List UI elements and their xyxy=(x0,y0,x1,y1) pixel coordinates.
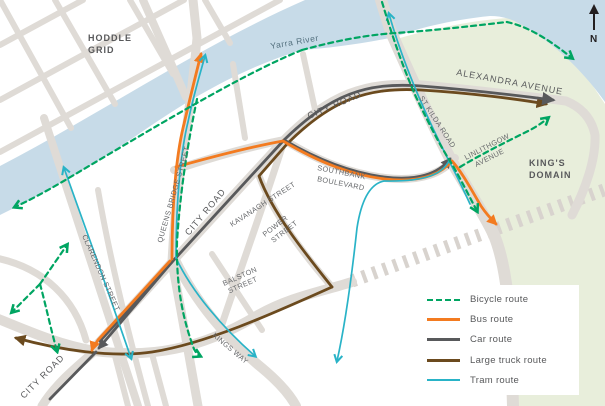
bus-route-swatch-icon xyxy=(427,318,460,321)
kings-domain-label-line1: KING'S xyxy=(529,158,566,168)
kings-domain-label-line2: DOMAIN xyxy=(529,170,572,180)
map-legend: Bicycle route Bus route Car route Large … xyxy=(413,285,579,395)
legend-item-bus: Bus route xyxy=(427,314,579,325)
hoddle-grid-label-line2: GRID xyxy=(88,45,115,55)
city-road-lower-label: CITY ROAD xyxy=(18,352,66,400)
legend-item-truck: Large truck route xyxy=(427,355,579,366)
legend-item-car: Car route xyxy=(427,334,579,345)
southbank-boulevard-label: SOUTHBANK BOULEVARD xyxy=(315,163,368,192)
legend-label-truck: Large truck route xyxy=(470,355,547,366)
legend-label-bus: Bus route xyxy=(470,314,513,325)
legend-label-tram: Tram route xyxy=(470,375,519,386)
hoddle-grid-label-line1: HODDLE xyxy=(88,33,132,43)
legend-label-car: Car route xyxy=(470,334,512,345)
truck-route-swatch-icon xyxy=(427,359,460,362)
legend-label-bicycle: Bicycle route xyxy=(470,294,528,305)
legend-item-bicycle: Bicycle route xyxy=(427,294,579,305)
bicycle-route-swatch-icon xyxy=(427,299,460,301)
legend-item-tram: Tram route xyxy=(427,375,579,386)
tram-route-swatch-icon xyxy=(427,379,460,381)
bike-route-sw-branch-w xyxy=(12,284,40,312)
car-route-swatch-icon xyxy=(427,338,460,341)
minor-street-4 xyxy=(233,64,245,138)
minor-street-2 xyxy=(152,354,166,406)
transport-routes-map: HODDLE GRID KING'S DOMAIN Yarra River AL… xyxy=(0,0,605,406)
car-route-city-road-sw xyxy=(99,262,172,348)
minor-street-5 xyxy=(303,54,316,114)
north-label: N xyxy=(590,34,597,45)
